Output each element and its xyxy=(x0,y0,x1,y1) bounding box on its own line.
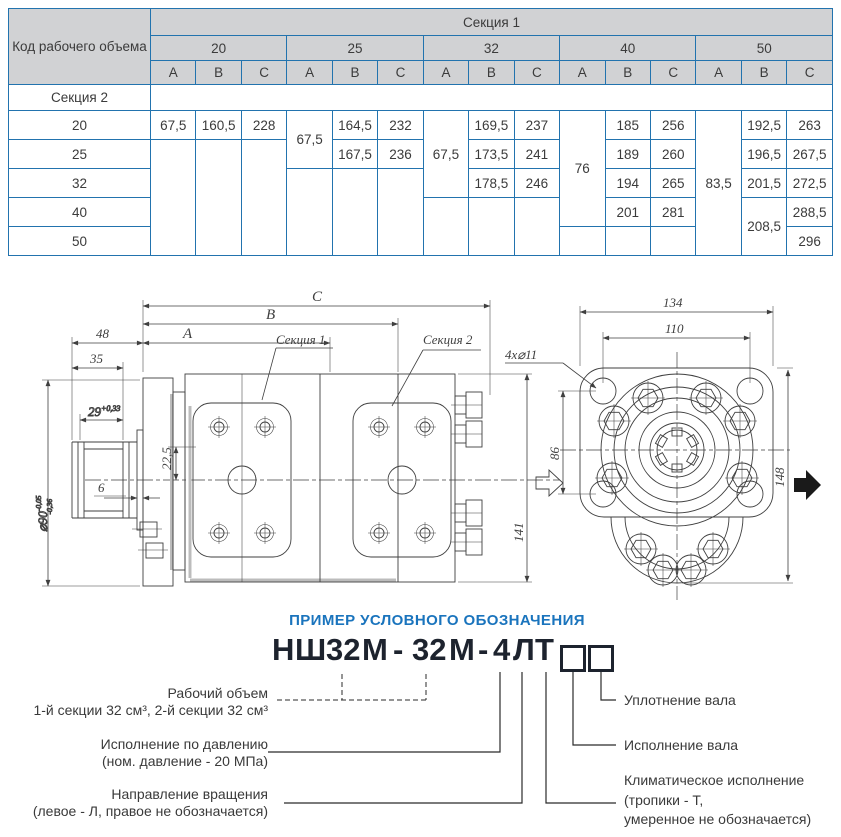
table-cell: 196,5 xyxy=(741,140,786,169)
table-cell-empty xyxy=(196,140,241,256)
dim-29: 29+0,33 xyxy=(88,404,120,419)
table-cell: 296 xyxy=(787,227,833,256)
callout-rotation-direction: Направление вращения (левое - Л, правое … xyxy=(33,786,268,819)
code-header: 20 xyxy=(151,36,287,61)
table-cell: 281 xyxy=(650,198,695,227)
table-cell-empty xyxy=(650,227,695,256)
table-cell: 263 xyxy=(787,111,833,140)
table-cell-empty xyxy=(514,198,559,256)
table-cell: 272,5 xyxy=(787,169,833,198)
table-cell: 160,5 xyxy=(196,111,241,140)
section2-label: Секция 2 xyxy=(423,332,473,347)
table-cell: 265 xyxy=(650,169,695,198)
row-label: 32 xyxy=(9,169,151,198)
table-cell-empty xyxy=(287,169,332,256)
side-view xyxy=(72,374,560,586)
pump-technical-drawing: C B A 48 35 29+0,33 6 ⌀90-0,05-0,36 22,5… xyxy=(0,285,841,610)
section1-header: Секция 1 xyxy=(151,9,833,36)
table-corner-header: Код рабочего объема xyxy=(9,9,151,85)
row-label: 50 xyxy=(9,227,151,256)
code-header: 25 xyxy=(287,36,423,61)
table-cell: 228 xyxy=(241,111,286,140)
table-cell: 194 xyxy=(605,169,650,198)
table-cell-empty xyxy=(241,140,286,256)
abc-header: A xyxy=(696,61,741,85)
table-cell: 246 xyxy=(514,169,559,198)
dim-22-5: 22,5 xyxy=(159,447,174,470)
table-cell-empty xyxy=(469,198,514,256)
table-cell-empty xyxy=(151,85,833,111)
abc-header: B xyxy=(196,61,241,85)
section1-label: Секция 1 xyxy=(276,332,325,347)
table-cell: 83,5 xyxy=(696,111,741,256)
abc-header: C xyxy=(241,61,286,85)
flow-arrow-solid xyxy=(794,470,821,500)
dim-48: 48 xyxy=(96,326,110,341)
table-cell: 201,5 xyxy=(741,169,786,198)
dim-90: ⌀90-0,05-0,36 xyxy=(34,495,54,532)
table-cell: 185 xyxy=(605,111,650,140)
dim-134: 134 xyxy=(663,295,683,310)
holes-label: 4х⌀11 xyxy=(505,347,537,362)
abc-header: C xyxy=(650,61,695,85)
table-cell: 164,5 xyxy=(332,111,377,140)
table-cell-empty xyxy=(332,169,377,256)
table-cell: 67,5 xyxy=(423,111,468,198)
table-cell: 288,5 xyxy=(787,198,833,227)
dim-110: 110 xyxy=(665,321,684,336)
abc-header: C xyxy=(787,61,833,85)
dim-86: 86 xyxy=(547,447,562,461)
table-cell: 236 xyxy=(378,140,423,169)
section2-header: Секция 2 xyxy=(9,85,151,111)
abc-header: B xyxy=(332,61,377,85)
table-cell: 67,5 xyxy=(151,111,196,140)
table-cell: 256 xyxy=(650,111,695,140)
table-cell: 173,5 xyxy=(469,140,514,169)
table-cell: 241 xyxy=(514,140,559,169)
abc-header: C xyxy=(514,61,559,85)
table-cell: 237 xyxy=(514,111,559,140)
table-cell-empty xyxy=(378,169,423,256)
callout-working-volume: Рабочий объем 1-й секции 32 см³, 2-й сек… xyxy=(33,685,268,718)
abc-header: C xyxy=(378,61,423,85)
dim-c: C xyxy=(312,289,323,305)
table-cell: 201 xyxy=(605,198,650,227)
table-cell: 208,5 xyxy=(741,198,786,256)
row-label: 25 xyxy=(9,140,151,169)
flow-arrow-outline xyxy=(536,470,563,496)
table-cell: 192,5 xyxy=(741,111,786,140)
front-view-dimensions: 134 110 86 148 4х⌀11 xyxy=(505,295,793,583)
table-cell-empty xyxy=(605,227,650,256)
code-header: 50 xyxy=(696,36,833,61)
table-cell: 167,5 xyxy=(332,140,377,169)
table-cell-empty xyxy=(423,198,468,256)
side-view-dimensions: C B A 48 35 29+0,33 6 ⌀90-0,05-0,36 22,5… xyxy=(34,289,532,586)
abc-header: B xyxy=(741,61,786,85)
callout-climatic-version: Климатическое исполнение (тропики - Т, у… xyxy=(624,771,811,830)
table-cell: 232 xyxy=(378,111,423,140)
dim-148: 148 xyxy=(772,467,787,487)
abc-header: A xyxy=(423,61,468,85)
abc-header: B xyxy=(605,61,650,85)
abc-header: A xyxy=(560,61,605,85)
code-header: 40 xyxy=(560,36,696,61)
abc-header: A xyxy=(151,61,196,85)
abc-header: B xyxy=(469,61,514,85)
table-cell-empty xyxy=(151,140,196,256)
callout-pressure-rating: Исполнение по давлению (ном. давление - … xyxy=(101,736,268,769)
table-cell: 267,5 xyxy=(787,140,833,169)
abc-header: A xyxy=(287,61,332,85)
table-cell: 67,5 xyxy=(287,111,332,169)
table-cell: 178,5 xyxy=(469,169,514,198)
dimensions-table: Код рабочего объема Секция 1 20 25 32 40… xyxy=(8,8,833,256)
dim-35: 35 xyxy=(89,351,104,366)
row-label: 20 xyxy=(9,111,151,140)
dim-141: 141 xyxy=(511,523,526,543)
table-cell: 189 xyxy=(605,140,650,169)
table-cell: 76 xyxy=(560,111,605,227)
table-cell: 260 xyxy=(650,140,695,169)
callout-shaft-seal: Уплотнение вала xyxy=(624,692,736,709)
table-cell: 169,5 xyxy=(469,111,514,140)
dim-6: 6 xyxy=(98,480,105,495)
row-label: 40 xyxy=(9,198,151,227)
code-header: 32 xyxy=(423,36,559,61)
dim-a: A xyxy=(182,326,193,342)
table-cell-empty xyxy=(560,227,605,256)
callout-shaft-design: Исполнение вала xyxy=(624,737,738,754)
dim-b: B xyxy=(266,307,275,323)
